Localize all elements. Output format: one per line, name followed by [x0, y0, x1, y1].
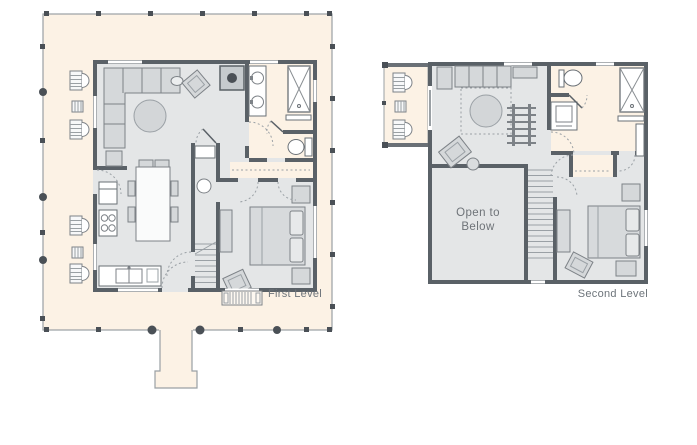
dining-chair-icon — [171, 181, 178, 196]
dining-chair-icon — [155, 160, 169, 167]
bench-icon — [222, 291, 262, 305]
nightstand-icon — [616, 261, 636, 276]
cutting-board-icon — [147, 269, 158, 282]
wood-stove-burner — [227, 73, 237, 83]
nightstand-icon — [292, 186, 310, 203]
dining-table-icon — [136, 167, 170, 241]
round-rug-icon — [470, 95, 502, 127]
towel-bar-icon — [618, 116, 644, 121]
pillow-icon — [626, 209, 639, 231]
open-to-below-label-line2: Below — [461, 221, 495, 233]
dresser-icon — [220, 210, 232, 252]
pillow-icon — [626, 234, 639, 256]
second-level-label: Second Level — [578, 288, 648, 300]
closet-floor — [573, 155, 613, 177]
console-table-icon — [513, 67, 537, 78]
dining-chair-icon — [128, 181, 135, 196]
range-icon — [99, 210, 117, 236]
towel-bar-icon — [286, 115, 311, 120]
floor-plans-svg: First Level — [0, 0, 697, 445]
dining-chair-icon — [171, 207, 178, 222]
porch-table-icon — [395, 101, 406, 112]
toilet-icon — [288, 140, 304, 155]
toilet-icon — [564, 70, 582, 86]
entry-walkway — [155, 330, 197, 388]
linen-cabinet-icon — [636, 124, 644, 156]
dining-chair-icon — [139, 160, 153, 167]
pillow-icon — [290, 238, 303, 262]
porch-table-icon — [72, 101, 83, 112]
toilet-tank — [305, 138, 312, 156]
balcony-door-leaf — [429, 90, 431, 126]
hall-table-icon — [197, 179, 211, 193]
hall-closet-icon — [195, 146, 215, 158]
open-to-below-label-line1: Open to — [456, 207, 500, 219]
nightstand-icon — [292, 268, 310, 284]
dresser-icon — [557, 210, 570, 252]
sink-icon — [252, 96, 264, 108]
dining-chair-icon — [128, 207, 135, 222]
nightstand-icon — [622, 184, 640, 201]
pillow-icon — [290, 211, 303, 235]
round-table-icon — [467, 158, 479, 170]
floor-plan-sheet: First Level — [0, 0, 697, 445]
balcony — [382, 62, 428, 148]
second-level-plan: Open to Below — [382, 62, 648, 300]
toilet-tank — [559, 70, 564, 87]
sink-icon — [556, 106, 572, 122]
chair-pad-icon — [437, 67, 452, 89]
first-level-plan: First Level — [39, 11, 335, 388]
round-rug-icon — [134, 100, 166, 132]
porch-table-icon — [72, 247, 83, 258]
fridge-icon — [99, 182, 117, 204]
first-level-label: First Level — [268, 288, 322, 300]
oval-table-icon — [171, 77, 183, 86]
dining-area — [128, 160, 178, 241]
side-table-icon — [106, 151, 122, 166]
sink-icon — [252, 72, 264, 84]
